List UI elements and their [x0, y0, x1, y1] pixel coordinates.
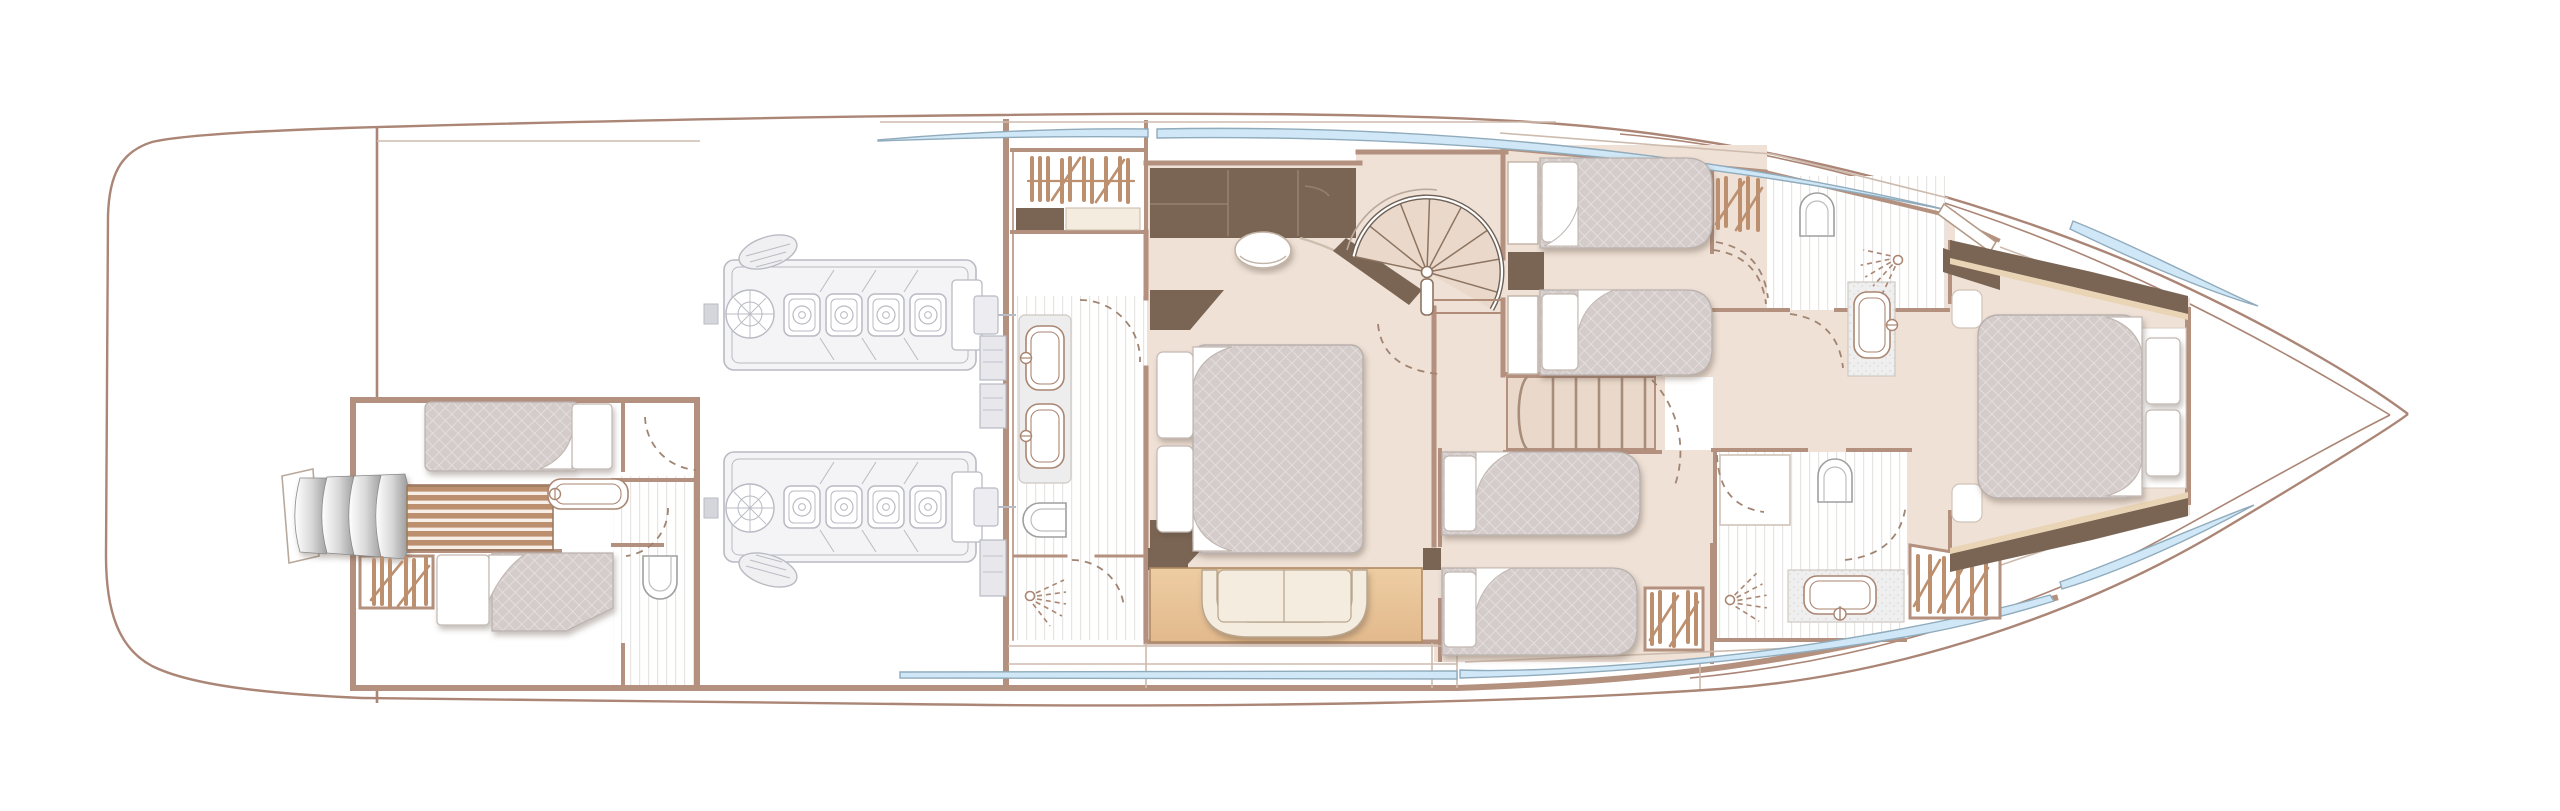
- sofa-side-block-right: [1423, 548, 1441, 570]
- pillow: [1157, 446, 1193, 532]
- pillow: [1444, 456, 1476, 531]
- pillow: [437, 555, 489, 625]
- transom-curved-steps: [295, 474, 411, 559]
- engine-room: [704, 228, 1016, 596]
- pillow: [1444, 572, 1476, 647]
- aft-cabin-door-arc: [645, 417, 696, 470]
- fwd-stbd-toilet: [1800, 193, 1834, 236]
- sofa-side-block-left: [1148, 548, 1188, 570]
- pillow: [572, 404, 612, 469]
- twin-bed-3: [1442, 452, 1640, 535]
- pillow: [2146, 338, 2180, 404]
- vip-side-table: [1952, 290, 1982, 328]
- aft-lower-berth: [437, 553, 613, 631]
- twin-bed-1: [1540, 158, 1712, 248]
- shower-tray: [1720, 455, 1790, 525]
- deck-plan-svg: [0, 0, 2560, 811]
- aft-toilet: [643, 556, 677, 599]
- wardrobe-cabinet-light: [1066, 208, 1140, 230]
- sink-1: [1020, 326, 1064, 390]
- engine-port: [704, 452, 1016, 594]
- floor-plan: Yacht lower deck floor plan (no text lab…: [0, 0, 2560, 811]
- twin-bed-2: [1540, 290, 1712, 375]
- nightstand-white: [1508, 296, 1538, 374]
- engine-starboard: [704, 228, 1016, 370]
- pillow: [2146, 410, 2180, 476]
- pillow: [1157, 352, 1193, 438]
- hull-stern-line: [106, 128, 362, 698]
- fwd-port-sink: [1804, 576, 1876, 620]
- twin-bed-4: [1442, 568, 1637, 655]
- wardrobe-cabinet-dark: [1016, 208, 1064, 230]
- window-band-top-aft: [878, 129, 1148, 141]
- aft-sink: [548, 479, 628, 509]
- window-band-bottom-aft: [900, 671, 1457, 679]
- aft-upper-berth: [425, 402, 612, 471]
- nightstand-dark: [1508, 252, 1544, 290]
- master-toilet: [1023, 503, 1066, 537]
- fwd-port-toilet: [1818, 459, 1852, 502]
- sink-2: [1020, 404, 1064, 468]
- nightstand-white: [1508, 162, 1538, 244]
- vip-side-table: [1952, 484, 1982, 522]
- master-sofa: [1202, 570, 1367, 637]
- vanity-stool: [1235, 232, 1291, 268]
- aft-wood-steps: [407, 486, 553, 550]
- master-double-bed: [1157, 345, 1363, 553]
- engine-room-panels: [980, 336, 1006, 596]
- pillow: [1542, 294, 1578, 370]
